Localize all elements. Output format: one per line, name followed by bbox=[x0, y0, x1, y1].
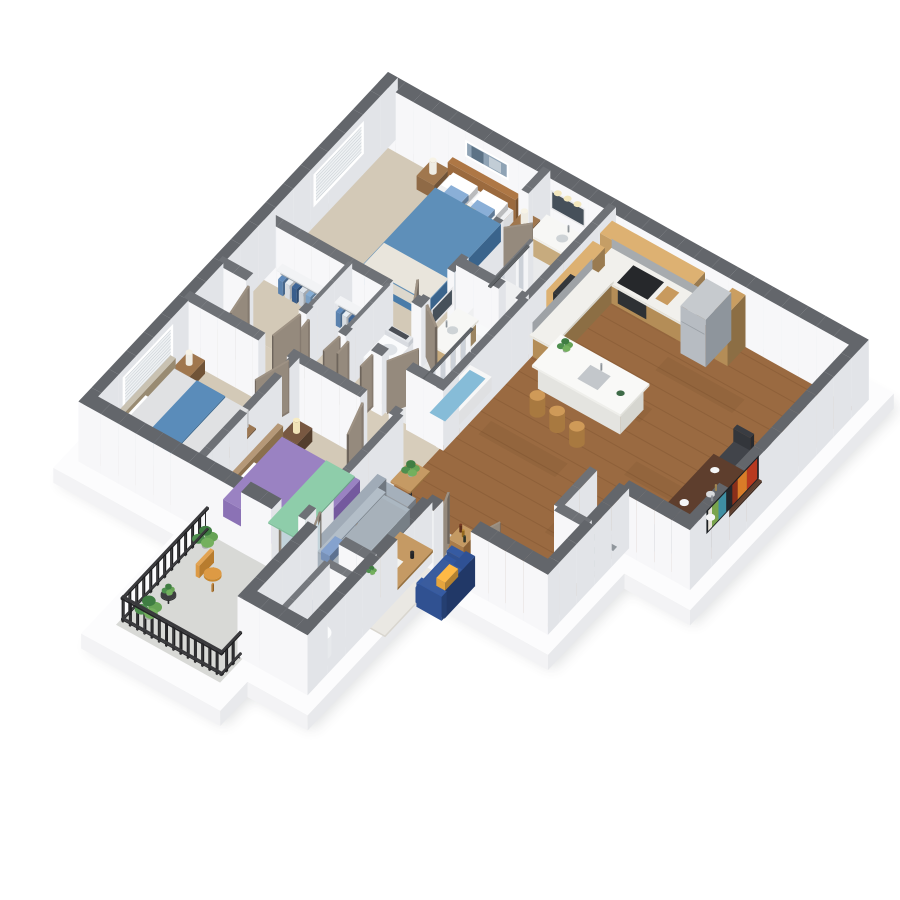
bottle bbox=[459, 524, 462, 526]
candlestick bbox=[715, 484, 717, 485]
table-lamp bbox=[521, 208, 528, 213]
coffee-table-plant bbox=[369, 566, 374, 570]
hall-south-wall-b bbox=[322, 376, 340, 446]
bottle bbox=[463, 536, 466, 542]
dinner-plate bbox=[680, 499, 689, 506]
north-exterior-wall bbox=[799, 317, 817, 387]
balcony-chair-seat bbox=[204, 567, 222, 579]
centerpiece-bowl bbox=[706, 491, 715, 498]
west-wing-south-wall bbox=[118, 424, 135, 494]
island-plant bbox=[562, 346, 570, 352]
balcony-table-plant bbox=[166, 590, 173, 596]
west-wing-south-wall bbox=[83, 404, 101, 474]
bath1-sink bbox=[556, 235, 568, 243]
north-exterior-wall bbox=[413, 102, 431, 172]
candlestick bbox=[711, 496, 713, 501]
vestibule-south-wall bbox=[308, 625, 318, 696]
balcony-chair-leg bbox=[213, 583, 214, 592]
balcony-table-plant bbox=[165, 584, 172, 590]
north-exterior-wall bbox=[781, 307, 799, 377]
candlestick bbox=[715, 485, 717, 491]
vanity-light bbox=[564, 196, 572, 202]
bottle bbox=[459, 525, 462, 533]
west-wing-south-wall bbox=[189, 463, 207, 533]
balcony-potted-plant bbox=[142, 596, 156, 607]
side-table-plant bbox=[408, 469, 417, 476]
vestibule-south-wall bbox=[278, 618, 296, 688]
hanging-clothes bbox=[285, 283, 290, 300]
entry-south-wall-b bbox=[488, 541, 506, 611]
table-lamp bbox=[429, 157, 437, 162]
hanging-clothes bbox=[299, 291, 304, 308]
hall-south-wall-a bbox=[235, 328, 253, 398]
hanging-clothes bbox=[278, 279, 283, 296]
island-plant bbox=[561, 338, 569, 344]
bar-stool bbox=[530, 390, 546, 401]
dining-south-exterior-wall bbox=[654, 510, 672, 580]
north-exterior-wall bbox=[764, 297, 782, 367]
north-exterior-wall bbox=[746, 287, 764, 357]
west-wing-south-wall bbox=[101, 414, 119, 484]
bar-stool bbox=[549, 406, 565, 417]
east-exterior-wall bbox=[680, 525, 690, 591]
west-wing-south-wall bbox=[171, 453, 189, 523]
entry-south-wall-b bbox=[548, 564, 558, 635]
entry-door-left bbox=[447, 492, 449, 544]
island-faucet bbox=[600, 364, 602, 371]
bath2-sink bbox=[447, 326, 458, 334]
island-faucet bbox=[600, 363, 602, 365]
balcony-potted-plant bbox=[201, 538, 214, 548]
dining-south-exterior-wall bbox=[637, 501, 655, 571]
bar-stool bbox=[569, 421, 585, 432]
north-exterior-wall bbox=[396, 92, 414, 162]
vestibule-south-wall bbox=[242, 599, 260, 669]
bottle bbox=[462, 529, 465, 531]
hall-north-wall-e bbox=[406, 370, 424, 440]
bath1-faucet bbox=[568, 226, 570, 233]
vanity-light bbox=[554, 190, 562, 196]
hanging-clothes bbox=[336, 311, 340, 328]
balcony-chair-back bbox=[196, 564, 200, 578]
isometric-floor-plan bbox=[0, 0, 900, 900]
dinner-plate bbox=[710, 467, 719, 473]
entry-south-wall-b bbox=[506, 551, 524, 621]
floor-plan-render bbox=[0, 0, 900, 900]
west-wing-south-wall bbox=[136, 434, 154, 504]
bath2-faucet bbox=[446, 321, 448, 327]
candlestick bbox=[711, 495, 713, 496]
west-wing-south-wall bbox=[241, 492, 259, 562]
coffee-table-vase bbox=[410, 551, 414, 554]
side-table-plant bbox=[406, 460, 415, 468]
bath1-faucet bbox=[568, 225, 570, 226]
entry-south-wall-b bbox=[541, 571, 548, 635]
vestibule-south-wall bbox=[295, 628, 308, 695]
hall-south-wall-a bbox=[218, 318, 236, 388]
vanity-light bbox=[574, 201, 582, 207]
bottle bbox=[463, 535, 466, 537]
dining-south-exterior-wall bbox=[690, 520, 700, 591]
table-lamp bbox=[186, 350, 193, 355]
bath2-faucet bbox=[446, 320, 448, 322]
dining-south-exterior-wall bbox=[689, 530, 690, 590]
island-bowl bbox=[616, 390, 624, 396]
table-lamp bbox=[293, 418, 300, 423]
west-wing-south-wall bbox=[153, 443, 171, 513]
west-wing-south-wall bbox=[259, 502, 272, 569]
coffee-table-plant bbox=[370, 571, 375, 575]
hanging-clothes bbox=[292, 287, 297, 304]
vestibule-south-wall bbox=[260, 609, 278, 679]
dinner-plate bbox=[706, 514, 715, 521]
balcony-chair-leg bbox=[211, 584, 212, 592]
